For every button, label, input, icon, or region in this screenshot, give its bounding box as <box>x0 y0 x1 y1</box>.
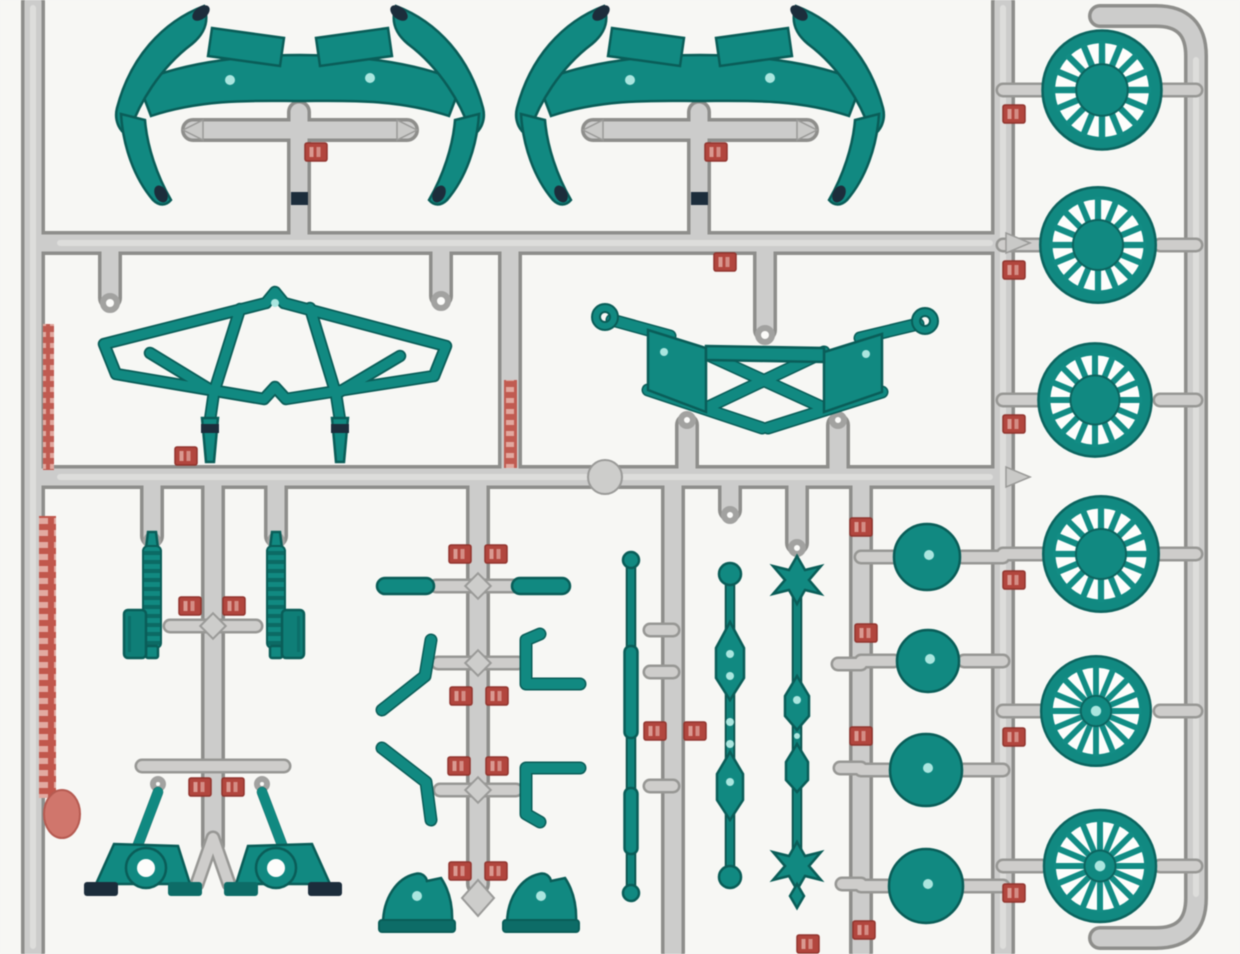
spoked-wheel-2 <box>1041 188 1156 303</box>
brake-drum-2 <box>897 630 959 692</box>
runner-print <box>504 380 517 468</box>
tie-bar-right <box>512 578 570 594</box>
spoked-wheel-5 <box>1041 656 1150 765</box>
spoked-wheel-4 <box>1044 497 1159 612</box>
brake-drum-3 <box>890 734 962 806</box>
brake-drum-4 <box>889 849 963 923</box>
sprue-photo <box>0 0 1240 954</box>
tie-bar-left <box>377 578 434 594</box>
runner-round-pad <box>588 460 622 494</box>
spoked-wheel-3 <box>1039 344 1152 457</box>
spoked-wheel-1 <box>1043 31 1161 149</box>
brake-drum-1 <box>894 524 960 590</box>
spoked-wheel-6 <box>1044 810 1156 922</box>
